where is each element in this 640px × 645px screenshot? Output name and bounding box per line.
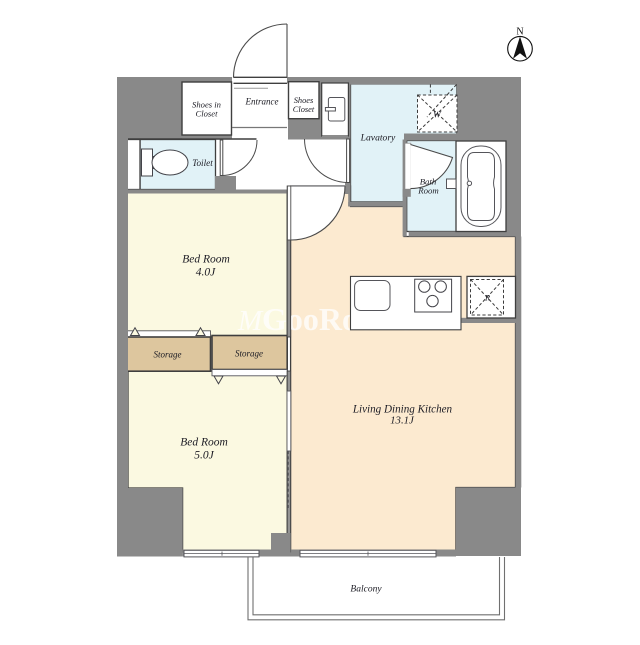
svg-text:Closet: Closet (293, 105, 315, 114)
svg-text:13.1J: 13.1J (390, 415, 415, 427)
svg-text:W: W (433, 111, 442, 121)
svg-text:Storage: Storage (154, 350, 182, 360)
svg-text:5.0J: 5.0J (194, 450, 214, 462)
svg-text:Closet: Closet (196, 109, 219, 119)
svg-text:Toilet: Toilet (192, 158, 213, 168)
svg-text:Entrance: Entrance (245, 97, 279, 107)
svg-text:Shoes: Shoes (294, 96, 314, 105)
svg-text:M: M (237, 305, 264, 337)
svg-text:4.0J: 4.0J (196, 267, 216, 279)
svg-text:Bed Room: Bed Room (182, 254, 230, 266)
svg-text:N: N (516, 27, 523, 38)
svg-text:Storage: Storage (235, 349, 263, 359)
svg-text:R: R (484, 294, 490, 303)
svg-text:Lavatory: Lavatory (360, 133, 396, 144)
svg-text:Room: Room (417, 186, 439, 196)
svg-text:Bed Room: Bed Room (180, 437, 228, 449)
svg-text:Balcony: Balcony (350, 585, 382, 595)
